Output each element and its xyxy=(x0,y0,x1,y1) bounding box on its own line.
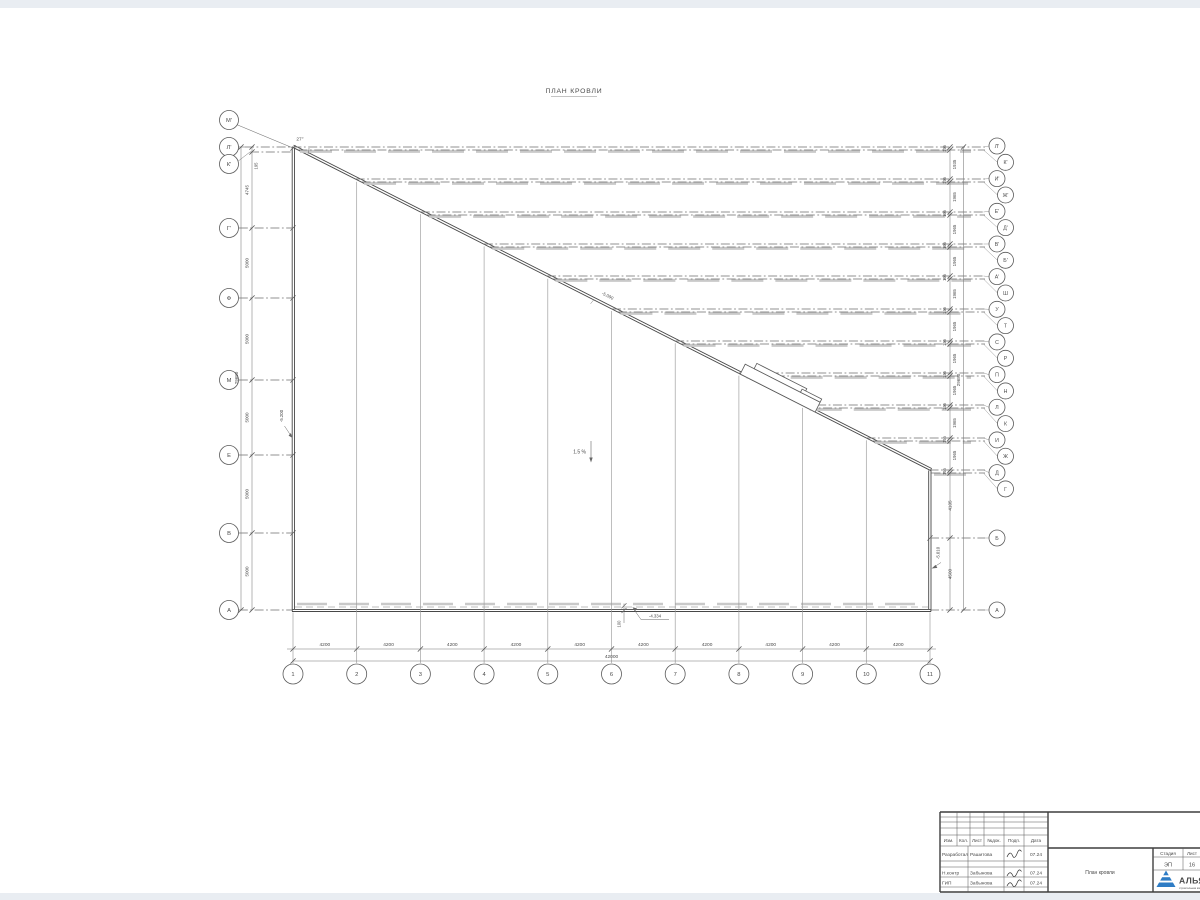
axis-circle-label: Л' xyxy=(227,145,232,151)
axis-circle-label: Е xyxy=(227,453,231,459)
axis-circle-label: Б' xyxy=(1003,258,1007,264)
axis-circle-label: М' xyxy=(226,118,232,124)
dim-label: 1965 xyxy=(952,289,957,299)
dim-label: 5000 xyxy=(245,333,250,344)
axis-circle-label: Д' xyxy=(1003,226,1008,232)
row-role: Н.контр xyxy=(942,871,959,877)
logo-slit xyxy=(1154,875,1178,877)
axis-circle-label: Ш xyxy=(1003,291,1008,297)
axis-circle-label: Н xyxy=(1004,389,1008,395)
axis-circle-label: С xyxy=(995,340,999,346)
axis-circle-label: Р xyxy=(1004,356,1008,362)
row-date: 07.24 xyxy=(1030,881,1042,887)
axis-circle-label: И' xyxy=(995,177,1000,183)
dim-label: 5000 xyxy=(245,566,250,577)
row-date: 07.24 xyxy=(1030,871,1042,877)
dim-label: 1965 xyxy=(952,224,957,234)
axis-circle-label: 9 xyxy=(801,672,804,678)
axis-circle-label: 11 xyxy=(927,672,933,678)
axis-circle-label: 5 xyxy=(546,672,549,678)
axis-circle-label: Ж' xyxy=(1003,193,1009,199)
dim-label: 195 xyxy=(942,209,947,217)
dim-label: 4200 xyxy=(893,642,904,648)
col-ndok: №док. xyxy=(987,838,1000,843)
dim-label: 195 xyxy=(942,306,947,314)
dim-label: 195 xyxy=(942,435,947,443)
axis-circle-label: Б xyxy=(995,536,999,542)
axis-circle-label: В xyxy=(227,531,231,537)
roof-plan-drawing: ПЛАН КРОВЛИ Л'К'И'Ж'Е'Д'В'Б'А'ШУТСРПНЛКИ… xyxy=(0,0,1200,900)
parapet-offset-label: 100 xyxy=(617,620,622,628)
sheet-value: 16 xyxy=(1189,863,1195,869)
dim-label: 1965 xyxy=(952,192,957,202)
dim-label: 1965 xyxy=(952,353,957,363)
slope-label: 1.5 % xyxy=(573,450,586,456)
bottom-elevation-label: -4.334 xyxy=(649,614,662,619)
logo-subtext: строительная компания xyxy=(1179,887,1200,890)
sheet-label: Лист xyxy=(1187,851,1198,856)
page-margin-bottom xyxy=(0,893,1200,900)
axis-circle-label: В' xyxy=(995,242,999,248)
axis-circle-label: 3 xyxy=(419,672,422,678)
dim-label: 4200 xyxy=(447,642,458,648)
axis-circle-label: 10 xyxy=(863,672,869,678)
axis-circle-label: А xyxy=(995,608,999,614)
dim-label: 29680 xyxy=(956,373,961,386)
axis-circle-label: А' xyxy=(995,275,999,281)
drawing-title: ПЛАН КРОВЛИ xyxy=(546,88,603,95)
dim-label: 1965 xyxy=(952,256,957,266)
dim-label: 4200 xyxy=(638,642,649,648)
axis-circle-label: Ж xyxy=(1003,454,1008,460)
axis-circle-label: М xyxy=(227,378,232,384)
axis-circle-label: П xyxy=(995,372,999,378)
dim-label: 4200 xyxy=(765,642,776,648)
dim-label: 4200 xyxy=(383,642,394,648)
page-margin-top xyxy=(0,0,1200,8)
axis-circle-label: Ф xyxy=(227,296,232,302)
dim-label: 195 xyxy=(942,144,947,152)
axis-circle-label: 8 xyxy=(737,672,740,678)
dim-label: 195 xyxy=(942,370,947,378)
dim-label: 5000 xyxy=(245,257,250,268)
dim-label: 4500 xyxy=(948,568,953,579)
axis-circle-label: 6 xyxy=(610,672,613,678)
axis-circle-label: К' xyxy=(227,162,231,168)
axis-circle-label: Г' xyxy=(227,226,231,232)
dim-label: 195 xyxy=(254,162,259,170)
col-izm: Изм. xyxy=(944,838,954,843)
dim-label: 5000 xyxy=(245,488,250,499)
dim-label: 1965 xyxy=(952,418,957,428)
dim-label: 1965 xyxy=(952,321,957,331)
col-podp: Подп. xyxy=(1008,838,1020,843)
col-list: Лист xyxy=(972,838,983,843)
angle-label: 27° xyxy=(296,137,303,143)
row-name: Забынова xyxy=(970,871,993,877)
axis-circle-label: К xyxy=(1004,421,1007,427)
dim-label: 29680 xyxy=(234,371,239,384)
dim-label: 195 xyxy=(942,467,947,475)
dim-label: 1935 xyxy=(952,159,957,169)
doc-title: План кровли xyxy=(1085,870,1115,876)
row-role: Разработал xyxy=(942,852,968,858)
axis-circle-label: Л' xyxy=(995,144,999,150)
col-kol: Кол. xyxy=(959,838,968,843)
row-role: ГИП xyxy=(942,881,952,887)
dim-label: 4200 xyxy=(574,642,585,648)
axis-circle-label: А xyxy=(227,608,231,614)
logo-text: АЛЬЯНС xyxy=(1179,876,1200,886)
axis-circle-label: 1 xyxy=(291,672,294,678)
col-data: Дата xyxy=(1031,838,1042,843)
row-name: Рашитова xyxy=(970,852,993,858)
axis-circle-label: 7 xyxy=(674,672,677,678)
axis-circle-label: Е' xyxy=(995,209,999,215)
axis-circle-label: 2 xyxy=(355,672,358,678)
axis-circle-label: Л xyxy=(995,405,998,411)
logo-slit xyxy=(1154,881,1178,883)
dim-label: 4200 xyxy=(829,642,840,648)
axis-circle-label: К' xyxy=(1003,160,1007,166)
dim-label: 4200 xyxy=(320,642,331,648)
dim-label: 5000 xyxy=(245,412,250,423)
dim-label: 1965 xyxy=(952,450,957,460)
axis-circle-label: И xyxy=(995,438,999,444)
dim-label: 195 xyxy=(942,241,947,249)
dim-label: 4105 xyxy=(948,500,953,511)
dim-label: 195 xyxy=(942,273,947,281)
dim-label: 195 xyxy=(942,176,947,184)
dim-label: 4745 xyxy=(245,184,250,195)
dim-label: 4200 xyxy=(511,642,522,648)
dim-label: 195 xyxy=(942,402,947,410)
right-elevation-label: -5.010 xyxy=(936,546,941,559)
stage-label: Стадия xyxy=(1160,851,1176,856)
axis-circle-label: Г xyxy=(1004,487,1007,493)
sheet xyxy=(0,8,1200,893)
stage-value: ЭП xyxy=(1164,863,1172,869)
dim-label: 42000 xyxy=(605,654,619,660)
axis-circle-label: Д xyxy=(995,470,999,476)
row-name: Забынова xyxy=(970,881,993,887)
left-elevation-label: -5.200 xyxy=(279,409,284,422)
dim-label: 195 xyxy=(942,338,947,346)
row-date: 07.24 xyxy=(1030,852,1042,858)
dim-label: 4200 xyxy=(702,642,713,648)
